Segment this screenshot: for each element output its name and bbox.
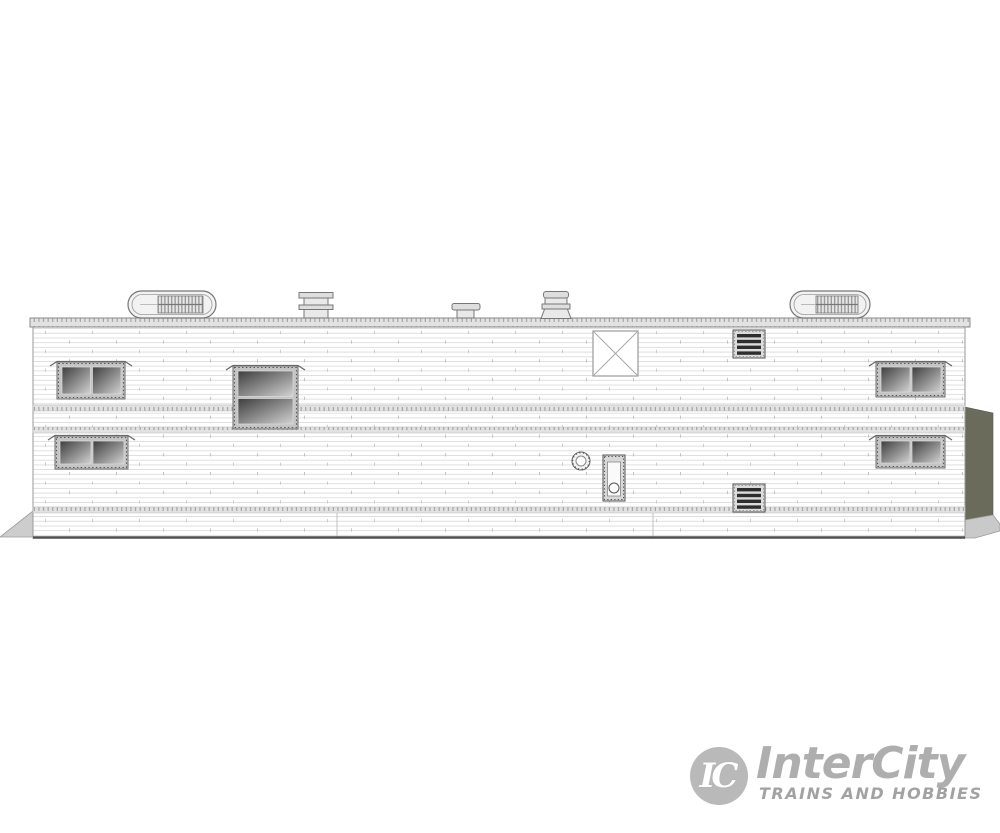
logo-initials: IC <box>700 759 735 793</box>
intercity-logo-icon: IC <box>690 747 748 805</box>
window-center-large <box>226 366 305 430</box>
trailer-side-elevation <box>0 0 1000 833</box>
window-right-lower <box>869 436 952 469</box>
mushroom-vent <box>452 304 480 319</box>
end-wall-panel <box>965 407 993 521</box>
water-heater-vent <box>541 292 571 319</box>
window-right-upper <box>869 362 952 398</box>
round-port-fitting <box>572 452 590 470</box>
roof-pod-vent-right <box>790 291 870 318</box>
window-left-lower <box>48 436 135 470</box>
trailer-body <box>0 318 1000 538</box>
belt-band-lower <box>33 507 965 513</box>
louver-vent-lower <box>733 484 765 512</box>
roof-edge-strip <box>30 318 970 327</box>
logo-brand-name: InterCity <box>756 742 964 786</box>
belt-band-middle <box>33 427 965 433</box>
product-image: IC InterCity TRAINS AND HOBBIES <box>0 0 1000 833</box>
roof-accessories <box>128 291 870 319</box>
intercity-logo: IC InterCity TRAINS AND HOBBIES <box>686 742 986 820</box>
louver-vent-upper <box>733 330 765 358</box>
logo-tagline: TRAINS AND HOBBIES <box>759 786 982 802</box>
utility-door <box>603 455 625 501</box>
belt-band-upper <box>33 405 965 411</box>
window-left-upper <box>50 362 132 400</box>
smoke-jack-stack <box>299 293 333 319</box>
roof-hatch-x-panel <box>593 331 638 376</box>
roof-pod-vent-left <box>128 291 216 318</box>
ground-wedge-left <box>0 511 33 537</box>
